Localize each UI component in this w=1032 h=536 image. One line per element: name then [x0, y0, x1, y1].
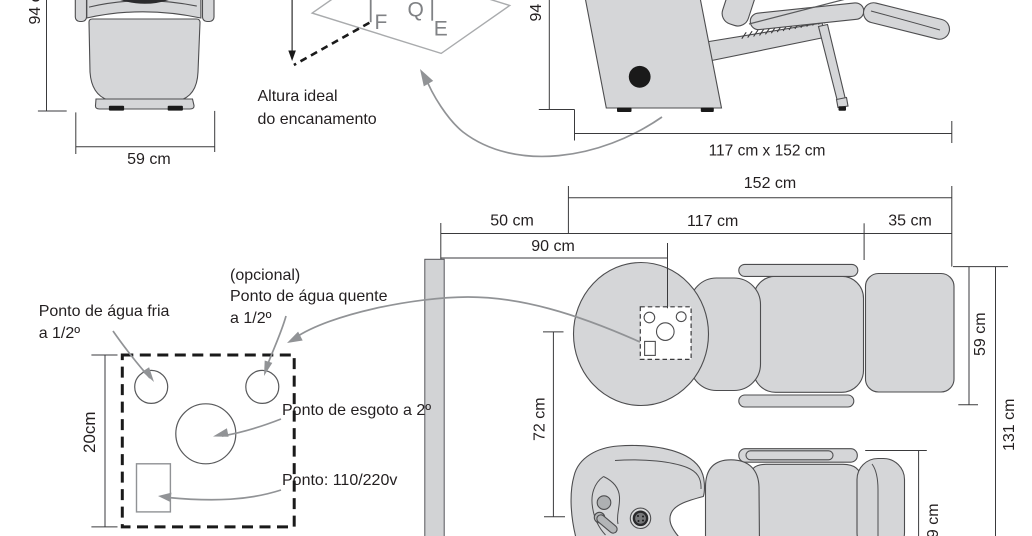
- svg-text:Q: Q: [408, 0, 424, 21]
- svg-text:94 cm: 94 cm: [528, 0, 545, 22]
- svg-text:Ponto de água quente: Ponto de água quente: [230, 288, 388, 305]
- svg-text:a 1/2º: a 1/2º: [230, 310, 272, 327]
- svg-text:94 cm: 94 cm: [27, 0, 44, 25]
- svg-text:Ponto de esgoto a 2º: Ponto de esgoto a 2º: [282, 402, 431, 419]
- svg-text:117 cm: 117 cm: [687, 213, 738, 230]
- svg-text:117 cm x 152 cm: 117 cm x 152 cm: [709, 143, 826, 160]
- svg-text:35 cm: 35 cm: [888, 212, 932, 229]
- svg-text:59 cm: 59 cm: [972, 312, 989, 356]
- svg-text:72 cm: 72 cm: [532, 397, 549, 441]
- svg-text:a 1/2º: a 1/2º: [39, 325, 81, 342]
- svg-text:(opcional): (opcional): [230, 267, 300, 284]
- svg-text:59 cm: 59 cm: [925, 503, 942, 536]
- svg-text:Altura ideal: Altura ideal: [258, 88, 338, 105]
- svg-text:Ponto: 110/220v: Ponto: 110/220v: [282, 472, 397, 489]
- svg-text:20cm: 20cm: [80, 411, 99, 453]
- svg-text:131 cm: 131 cm: [1001, 399, 1018, 451]
- svg-text:F: F: [375, 11, 388, 34]
- svg-text:do encanamento: do encanamento: [258, 111, 377, 128]
- svg-text:59 cm: 59 cm: [127, 151, 171, 168]
- svg-text:90 cm: 90 cm: [531, 238, 575, 255]
- svg-text:50 cm: 50 cm: [490, 212, 534, 229]
- svg-text:Ponto de água fria: Ponto de água fria: [39, 303, 170, 320]
- svg-text:E: E: [434, 17, 448, 40]
- svg-text:152 cm: 152 cm: [744, 175, 796, 192]
